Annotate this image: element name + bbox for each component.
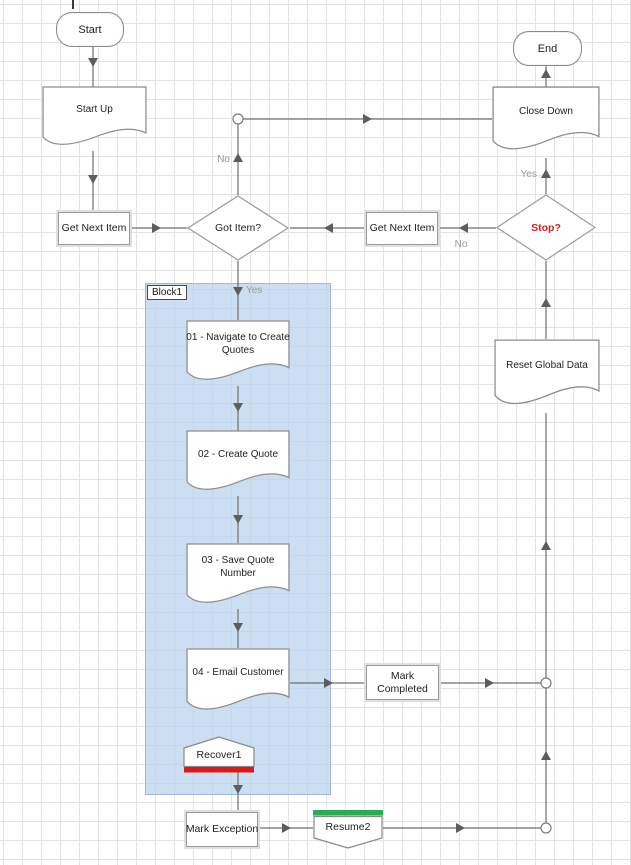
link-anchor-circle [541,678,551,688]
step-02-stage[interactable]: 02 - Create Quote [186,430,290,497]
step-04-label: 04 - Email Customer [184,648,292,699]
start-up-stage[interactable]: Start Up [42,86,147,152]
arrowhead [459,223,468,233]
mark-completed-stage[interactable]: Mark Completed [366,665,439,700]
arrowhead [233,403,243,412]
arrowhead [541,541,551,550]
recover1-stage[interactable]: Recover1 [183,736,255,773]
get-next-item-right-label: Get Next Item [370,222,435,234]
process-diagram-canvas: Block1 [0,0,631,865]
arrowhead [88,58,98,67]
reset-global-data-label: Reset Global Data [492,339,602,393]
arrowhead [282,823,291,833]
reset-global-data-stage[interactable]: Reset Global Data [494,339,600,412]
arrowhead [233,623,243,632]
edge-label-no: No [217,154,230,165]
arrowhead [233,515,243,524]
arrowhead [233,153,243,162]
step-02-label: 02 - Create Quote [184,430,292,480]
edge-label-no: No [455,239,468,250]
arrowhead [363,114,372,124]
got-item-label: Got Item? [187,195,289,261]
arrowhead [485,678,494,688]
arrowhead [541,169,551,178]
edge-label-yes: Yes [246,285,262,296]
arrowhead [324,678,333,688]
step-03-label: 03 - Save Quote Number [184,543,292,593]
stop-label: Stop? [496,194,596,261]
arrowhead [233,785,243,794]
arrowhead [88,175,98,184]
stop-decision[interactable]: Stop? [496,194,596,261]
end-label: End [538,43,558,55]
arrowhead [541,69,551,78]
arrowhead [324,223,333,233]
start-anchor-tick [72,0,74,9]
start-label: Start [78,24,101,36]
get-next-item-left-stage[interactable]: Get Next Item [58,212,130,245]
start-stage[interactable]: Start [56,12,124,47]
recover-red-bar [184,767,254,773]
step-04-stage[interactable]: 04 - Email Customer [186,648,290,717]
link-anchor-circle [541,823,551,833]
get-next-item-right-stage[interactable]: Get Next Item [366,212,438,245]
get-next-item-left-label: Get Next Item [62,222,127,234]
got-item-decision[interactable]: Got Item? [187,195,289,261]
recover1-label: Recover1 [183,745,255,765]
edge-label-yes: Yes [521,169,537,180]
step-01-label: 01 - Navigate to Create Quotes [184,320,292,370]
arrowhead [541,751,551,760]
mark-exception-label: Mark Exception [186,823,258,835]
start-up-label: Start Up [40,86,149,135]
step-01-stage[interactable]: 01 - Navigate to Create Quotes [186,320,290,387]
resume2-stage[interactable]: Resume2 [313,810,383,849]
arrowhead [152,223,161,233]
arrowhead [233,287,243,296]
mark-completed-label: Mark Completed [367,670,438,694]
arrowhead [541,298,551,307]
arrowhead [456,823,465,833]
step-03-stage[interactable]: 03 - Save Quote Number [186,543,290,610]
mark-exception-stage[interactable]: Mark Exception [186,812,258,847]
end-stage[interactable]: End [513,31,582,66]
close-down-stage[interactable]: Close Down [492,86,600,157]
resume2-label: Resume2 [313,816,383,838]
link-anchor-circle [233,114,243,124]
resume-green-bar [313,810,383,816]
close-down-label: Close Down [490,86,602,139]
